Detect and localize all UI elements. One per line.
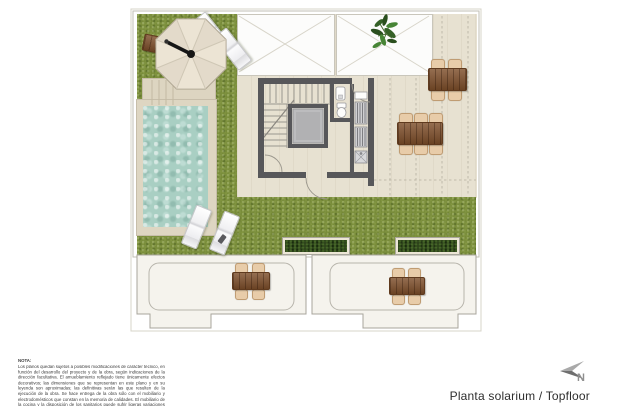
umbrella-hub <box>187 50 195 58</box>
north-label: N <box>577 372 585 384</box>
note-body: Los planos quedan sujetos a posibles mod… <box>18 365 165 406</box>
note-block: NOTA: Los planos quedan sujetos a posibl… <box>18 359 228 406</box>
floorplan-canvas: NOTA: Los planos quedan sujetos a posibl… <box>0 0 620 406</box>
plan-title: Planta solarium / Topfloor <box>430 389 590 403</box>
note-heading: NOTA: <box>18 359 169 363</box>
umbrella-icon <box>156 19 226 89</box>
umbrella-pole <box>164 39 168 43</box>
decor-overlay <box>0 0 620 406</box>
plant-icon <box>370 14 398 50</box>
